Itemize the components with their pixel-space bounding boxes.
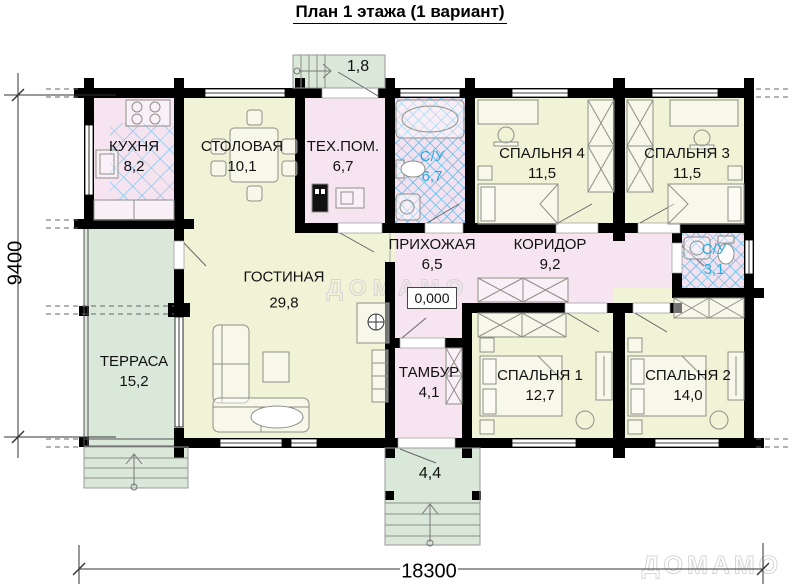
room-label-hallway: ПРИХОЖАЯ6,5 — [388, 235, 475, 275]
plan-linework — [0, 0, 800, 584]
room-label-bath-small: С/У3,1 — [702, 240, 727, 280]
floor-plan: ДОМАМО ДОМАМО — [0, 0, 800, 584]
room-label-terrace: ТЕРРАСА15,2 — [100, 352, 168, 392]
room-label-living: ГОСТИНАЯ29,8 — [244, 265, 325, 316]
room-label-dining: СТОЛОВАЯ10,1 — [201, 137, 283, 177]
porch-bottom-area-label: 4,4 — [419, 465, 441, 483]
elevation-mark: 0,000 — [407, 287, 457, 309]
room-label-vestibule: ТАМБУР4,1 — [399, 363, 459, 403]
room-label-bedroom1: СПАЛЬНЯ 112,7 — [497, 366, 583, 406]
room-label-tech: ТЕХ.ПОМ.6,7 — [307, 137, 379, 177]
room-label-bedroom4: СПАЛЬНЯ 411,5 — [499, 144, 585, 184]
dim-height-9400: 9400 — [5, 241, 28, 286]
room-label-kitchen: КУХНЯ8,2 — [109, 137, 159, 177]
porch-top-area-label: 1,8 — [347, 58, 369, 76]
dim-width-18300: 18300 — [401, 561, 457, 584]
room-label-bath-main: С/У6,7 — [420, 147, 445, 187]
room-label-bedroom3: СПАЛЬНЯ 311,5 — [644, 144, 730, 184]
room-label-bedroom2: СПАЛЬНЯ 214,0 — [645, 366, 731, 406]
room-label-corridor: КОРИДОР9,2 — [514, 235, 587, 275]
plan-title: План 1 этажа (1 вариант) — [0, 2, 800, 24]
